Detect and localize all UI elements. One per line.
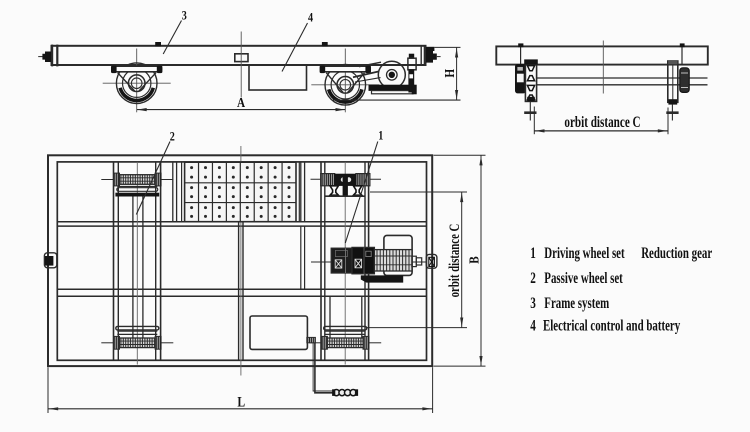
svg-text:orbit distance C: orbit distance C xyxy=(445,224,462,298)
svg-text:L: L xyxy=(237,393,245,410)
svg-text:4: 4 xyxy=(530,317,536,334)
svg-text:1: 1 xyxy=(378,128,383,142)
svg-text:3: 3 xyxy=(182,8,187,22)
svg-text:H: H xyxy=(442,69,457,78)
svg-text:Electrical control and battery: Electrical control and battery xyxy=(543,316,680,334)
svg-text:Reduction gear: Reduction gear xyxy=(641,244,712,262)
svg-text:1: 1 xyxy=(530,244,536,261)
svg-text:Driving wheel set: Driving wheel set xyxy=(544,244,625,262)
svg-text:3: 3 xyxy=(530,294,536,311)
svg-text:2: 2 xyxy=(530,269,536,286)
svg-text:Frame system: Frame system xyxy=(544,294,609,312)
svg-text:Passive wheel set: Passive wheel set xyxy=(544,269,623,287)
svg-text:B: B xyxy=(466,256,481,264)
svg-text:A: A xyxy=(237,95,246,110)
svg-text:4: 4 xyxy=(308,10,313,24)
svg-text:orbit distance C: orbit distance C xyxy=(564,113,640,130)
svg-text:2: 2 xyxy=(170,129,175,143)
